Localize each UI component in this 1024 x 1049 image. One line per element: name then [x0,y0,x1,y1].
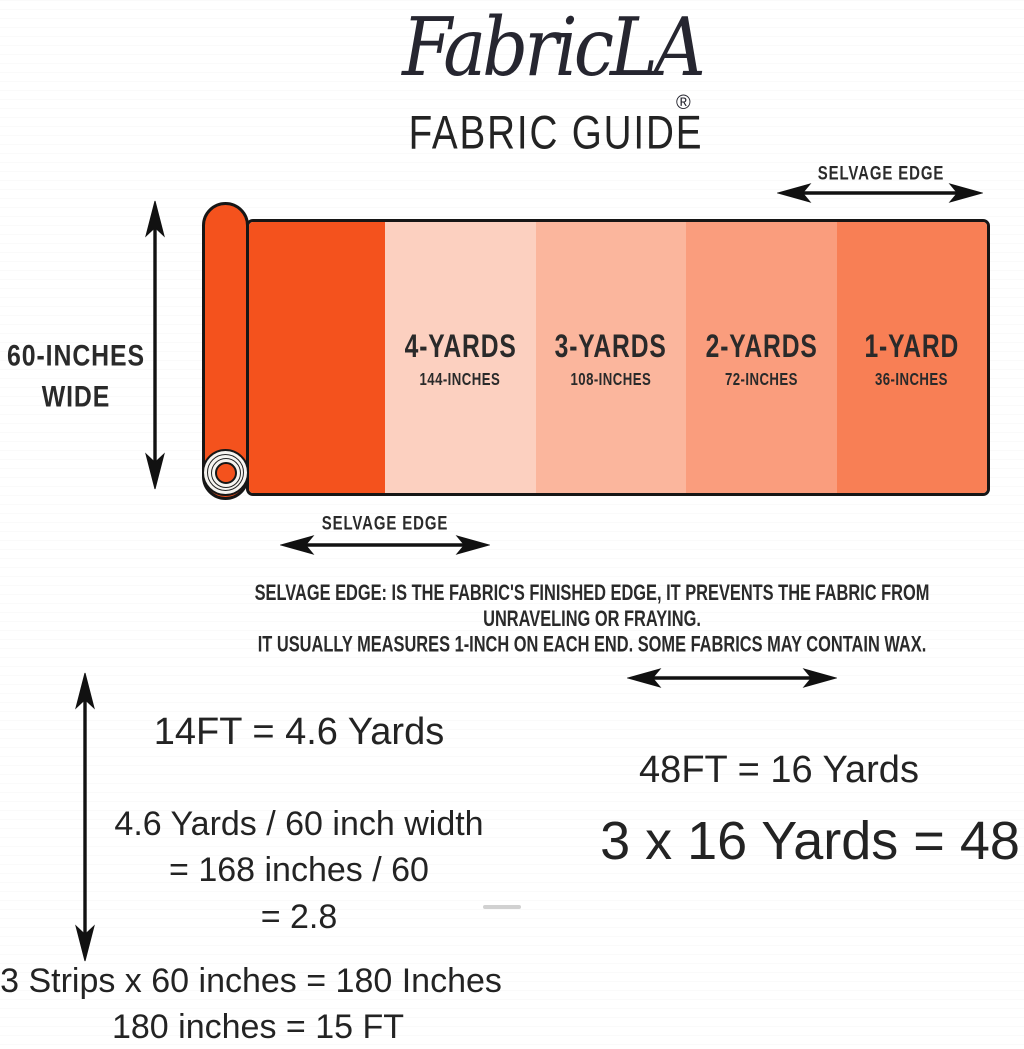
calc-right-line1: 48FT = 16 Yards [529,750,1024,792]
section-inches-label: 144-INCHES [420,370,501,390]
section-inches-label: 72-INCHES [725,370,798,390]
section-yards-label: 2-YARDS [705,328,817,365]
fabric-section-1-yard: 1-YARD 36-INCHES [837,222,988,493]
selvage-note-line2: IT USUALLY MEASURES 1-INCH ON EACH END. … [239,633,944,659]
calc-left-line1: 14FT = 4.6 Yards [59,712,539,754]
section-yards-label: 1-YARD [864,328,959,365]
section-inches-label: 36-INCHES [875,370,948,390]
page-title: FABRIC GUIDE [326,106,786,160]
fabric-sheet: 4-YARDS 144-INCHES 3-YARDS 108-INCHES 2-… [246,219,990,496]
selvage-edge-bottom-label: SELVAGE EDGE [297,512,473,535]
fabric-width-line1: 60-INCHES [6,336,146,377]
calc-left-line4: = 2.8 [59,899,539,936]
calc-bottom-line1: 3 Strips x 60 inches = 180 Inches [0,963,511,1000]
fabric-width-line2: WIDE [6,377,146,418]
fabric-section-4-yards: 4-YARDS 144-INCHES [385,222,536,493]
fabric-roll-end-icon [202,449,249,496]
calc-right-line2: 3 x 16 Yards = 48 [560,812,1024,871]
fabric-guide-infographic: FabricLA ® FABRIC GUIDE SELVAGE EDGE 60-… [0,0,1024,1049]
calc-bottom-line2: 180 inches = 15 FT [0,1009,518,1046]
double-arrow-horizontal-icon [280,533,490,557]
fine-print-smudge [483,905,521,909]
roll-core [215,462,237,484]
selvage-note-line1: SELVAGE EDGE: IS THE FABRIC'S FINISHED E… [239,581,944,633]
fabric-width-label: 60-INCHES WIDE [6,336,146,417]
selvage-note: SELVAGE EDGE: IS THE FABRIC'S FINISHED E… [239,581,944,658]
section-yards-label: 3-YARDS [555,328,667,365]
fabric-section-2-yards: 2-YARDS 72-INCHES [686,222,837,493]
brand-logo: FabricLA [252,0,852,94]
double-arrow-horizontal-icon [777,181,983,205]
section-yards-label: 4-YARDS [404,328,516,365]
calc-left-line2: 4.6 Yards / 60 inch width [59,806,539,843]
fabric-section-rolled [249,222,385,493]
roll-ring [207,454,244,491]
fabric-section-3-yards: 3-YARDS 108-INCHES [536,222,687,493]
section-inches-label: 108-INCHES [570,370,651,390]
roll-ring [211,458,241,488]
double-arrow-horizontal-icon [627,666,837,690]
calc-left-line3: = 168 inches / 60 [59,852,539,889]
